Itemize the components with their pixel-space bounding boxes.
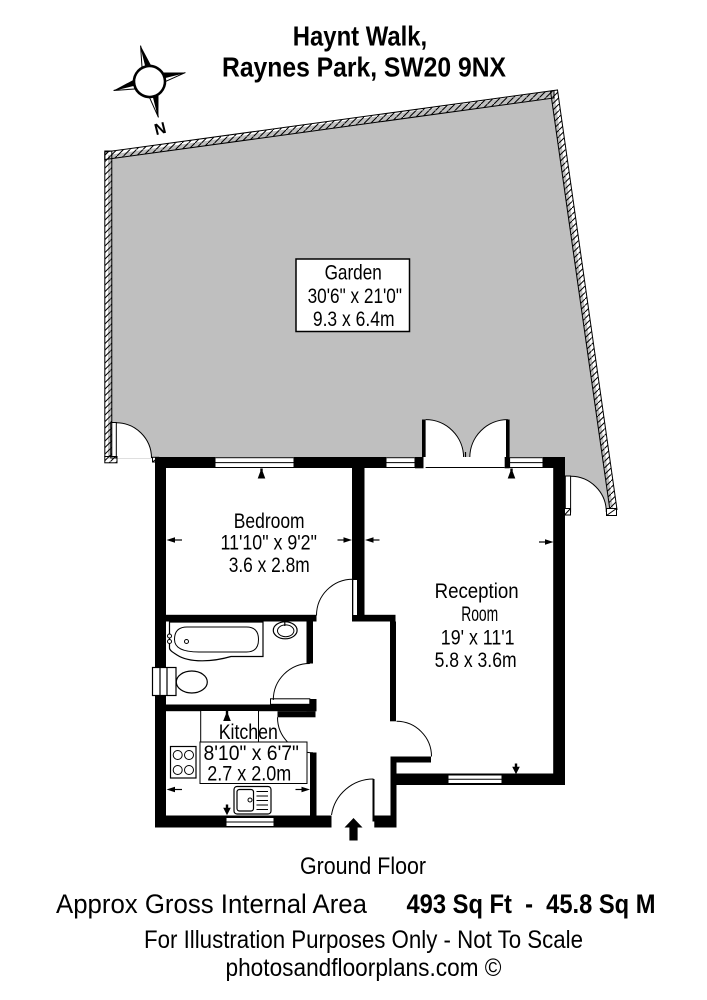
svg-text:2.7 x 2.0m: 2.7 x 2.0m — [207, 763, 291, 786]
svg-text:9.3 x 6.4m: 9.3 x 6.4m — [313, 308, 395, 331]
svg-text:Garden: Garden — [325, 262, 382, 285]
svg-text:Reception: Reception — [435, 580, 519, 603]
svg-text:5.8 x 3.6m: 5.8 x 3.6m — [435, 649, 517, 672]
svg-text:3.6 x 2.8m: 3.6 x 2.8m — [229, 554, 310, 577]
svg-text:Approx Gross Internal Area: Approx Gross Internal Area — [56, 888, 368, 919]
svg-text:Kitchen: Kitchen — [219, 721, 278, 744]
svg-text:11'10" x 9'2": 11'10" x 9'2" — [221, 532, 317, 555]
svg-text:Bedroom: Bedroom — [234, 510, 305, 533]
svg-text:30'6" x 21'0": 30'6" x 21'0" — [308, 285, 402, 308]
svg-text:photosandfloorplans.com ©: photosandfloorplans.com © — [226, 955, 502, 982]
svg-text:19' x 11'1: 19' x 11'1 — [441, 627, 515, 650]
svg-text:Raynes Park, SW20 9NX: Raynes Park, SW20 9NX — [222, 52, 507, 83]
svg-text:Room: Room — [461, 603, 498, 626]
svg-text:Ground Floor: Ground Floor — [300, 853, 426, 880]
svg-text:Haynt Walk,: Haynt Walk, — [293, 21, 427, 52]
svg-text:493 Sq Ft - 45.8 Sq M: 493 Sq Ft - 45.8 Sq M — [407, 888, 656, 919]
svg-text:For Illustration Purposes Only: For Illustration Purposes Only - Not To … — [144, 927, 583, 954]
